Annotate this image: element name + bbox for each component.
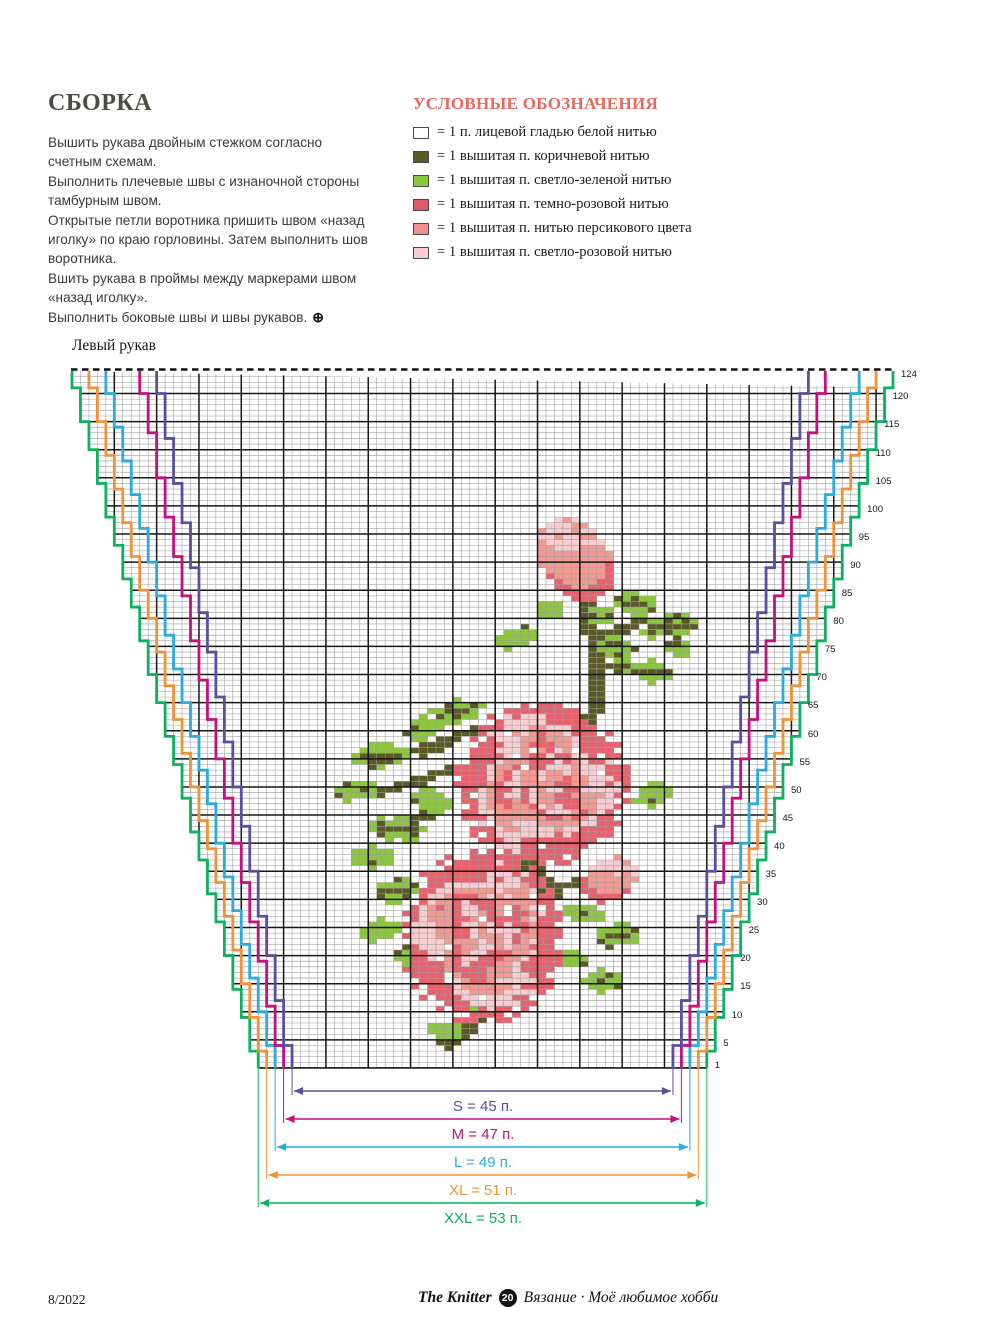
row-number: 90 [850,560,861,571]
end-of-pattern-icon: ⊕ [312,309,324,325]
legend-label: = 1 вышитая п. темно-розовой нитью [437,196,669,213]
legend-items: = 1 п. лицевой гладью белой нитью= 1 выш… [413,124,773,261]
legend-label: = 1 п. лицевой гладью белой нитью [437,124,657,141]
assembly-title: СБОРКА [48,90,368,117]
legend-item: = 1 вышитая п. коричневой нитью [413,148,773,165]
assembly-text: Вышить рукава двойным стежком согласно с… [48,133,368,327]
row-number: 10 [732,1010,743,1021]
row-number: 40 [774,841,785,852]
legend-item: = 1 вышитая п. светло-зеленой нитью [413,172,773,189]
row-number: 70 [816,672,827,683]
row-number: 105 [876,476,892,487]
magazine-page: СБОРКА Вышить рукава двойным стежком сог… [0,0,999,1339]
footer-issue-date: 8/2022 [48,1292,86,1308]
row-number: 55 [799,757,810,768]
row-number: 85 [842,588,853,599]
row-number: 30 [757,897,768,908]
row-number: 80 [833,616,844,627]
legend-label: = 1 вышитая п. нитью персикового цвета [437,220,692,237]
stitch-swatch-icon [413,247,429,259]
row-number: 60 [808,729,819,740]
legend-section: УСЛОВНЫЕ ОБОЗНАЧЕНИЯ = 1 п. лицевой глад… [413,94,773,268]
footer-center: The Knitter 20 Вязание · Моё любимое хоб… [418,1289,718,1307]
legend-title: УСЛОВНЫЕ ОБОЗНАЧЕНИЯ [413,94,773,114]
row-number: 65 [808,700,819,711]
row-number: 20 [740,953,751,964]
assembly-line: Открытые петли воротника пришить швом «н… [48,211,368,269]
footer-brand: The Knitter [418,1289,492,1307]
stitch-swatch-icon [413,151,429,163]
row-number: 5 [723,1038,728,1049]
row-number: 95 [859,532,870,543]
row-number: 45 [783,813,794,824]
row-number: 25 [749,925,760,936]
stitch-swatch-icon [413,223,429,235]
stitch-swatch-icon [413,127,429,139]
page-number-badge: 20 [499,1289,517,1307]
size-label-l: L = 49 п. [333,1154,633,1171]
chart-title: Левый рукав [72,337,156,355]
row-number: 75 [825,644,836,655]
row-number: 124 [901,369,917,380]
assembly-line: Выполнить боковые швы и швы рукавов.⊕ [48,308,368,327]
size-label-s: S = 45 п. [333,1098,633,1115]
size-label-xl: XL = 51 п. [333,1182,633,1199]
assembly-line: Вшить рукава в проймы между маркерами шв… [48,269,368,308]
footer-tagline: Вязание · Моё любимое хобби [524,1289,719,1307]
row-number: 100 [867,504,883,515]
legend-item: = 1 вышитая п. светло-розовой нитью [413,244,773,261]
row-number: 15 [740,981,751,992]
legend-item: = 1 вышитая п. темно-розовой нитью [413,196,773,213]
legend-item: = 1 п. лицевой гладью белой нитью [413,124,773,141]
assembly-line: Выполнить плечевые швы с изнаночной стор… [48,172,368,211]
row-number: 35 [766,869,777,880]
stitch-swatch-icon [413,199,429,211]
assembly-section: СБОРКА Вышить рукава двойным стежком сог… [48,90,368,327]
row-number: 1 [715,1060,720,1071]
size-label-m: M = 47 п. [333,1126,633,1143]
size-label-xxl: XXL = 53 п. [333,1210,633,1227]
legend-label: = 1 вышитая п. светло-зеленой нитью [437,172,671,189]
legend-label: = 1 вышитая п. коричневой нитью [437,148,650,165]
row-number: 110 [876,448,891,459]
legend-item: = 1 вышитая п. нитью персикового цвета [413,220,773,237]
row-number: 50 [791,785,802,796]
assembly-line: Вышить рукава двойным стежком согласно с… [48,133,368,172]
row-number: 120 [893,391,909,402]
legend-label: = 1 вышитая п. светло-розовой нитью [437,244,672,261]
stitch-swatch-icon [413,175,429,187]
row-number: 115 [884,419,899,430]
